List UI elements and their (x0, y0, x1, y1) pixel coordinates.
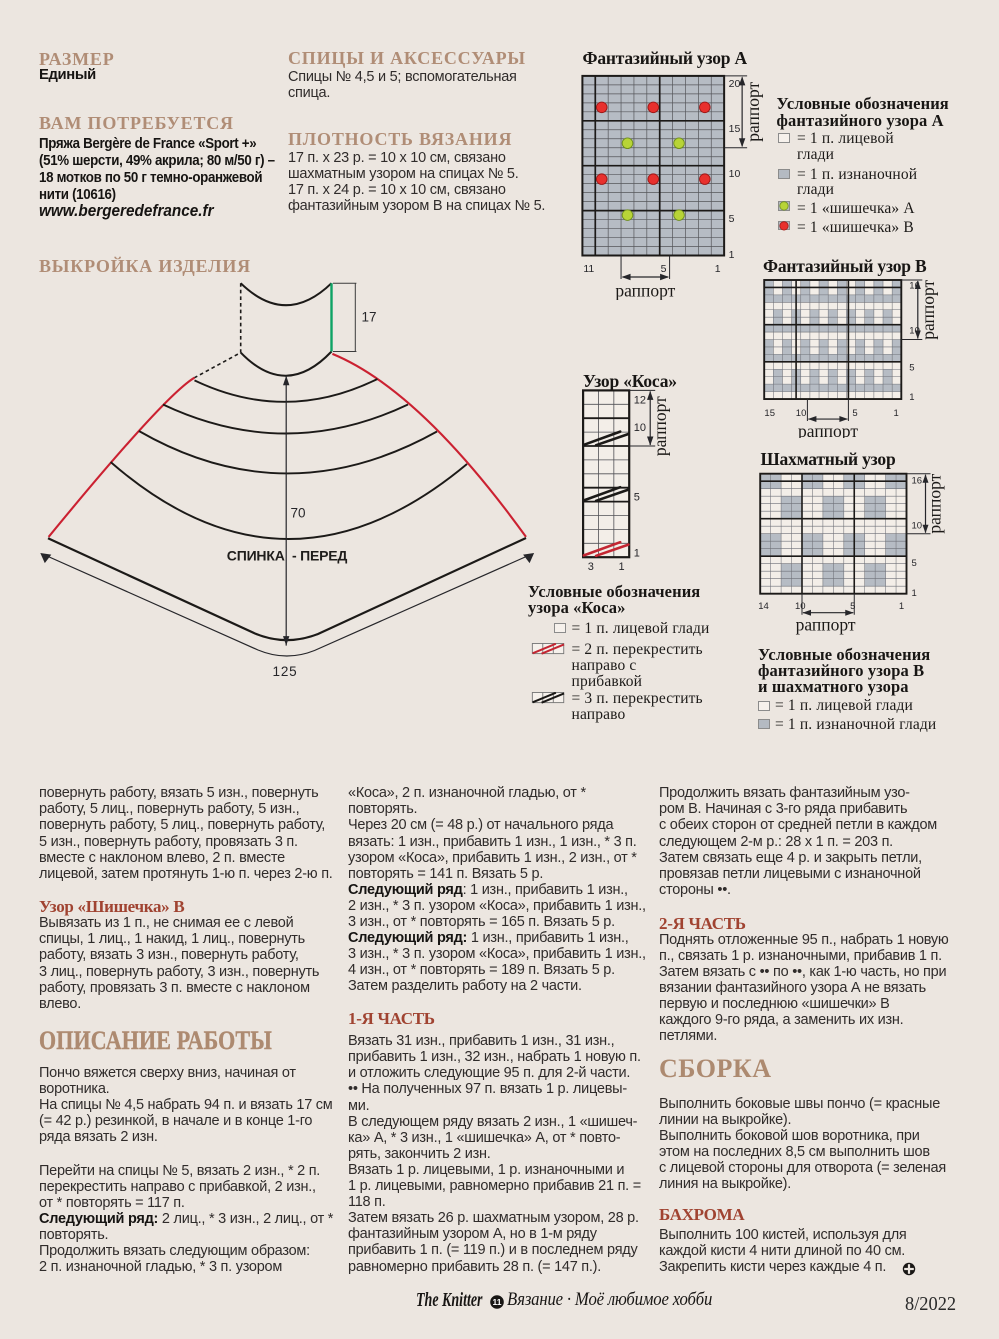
svg-text:1: 1 (893, 408, 898, 419)
svg-text:раппорт: раппорт (918, 279, 938, 339)
svg-text:125: 125 (273, 664, 298, 679)
svg-text:1: 1 (909, 392, 914, 403)
svg-text:16: 16 (912, 476, 923, 487)
svg-text:СПИНКА - ПЕРЕД: СПИНКА - ПЕРЕД (227, 548, 348, 564)
svg-text:1: 1 (912, 588, 917, 599)
svg-text:12: 12 (634, 394, 646, 406)
svg-text:5: 5 (852, 408, 857, 419)
svg-text:15: 15 (764, 408, 775, 419)
svg-text:10: 10 (795, 601, 806, 612)
svg-text:5: 5 (661, 263, 667, 275)
svg-text:70: 70 (291, 506, 306, 521)
svg-text:раппорт: раппорт (650, 396, 670, 456)
svg-text:10: 10 (634, 422, 646, 434)
svg-text:17: 17 (362, 310, 377, 325)
svg-text:20: 20 (729, 78, 741, 90)
svg-text:15: 15 (729, 123, 741, 135)
svg-text:3: 3 (588, 561, 594, 573)
svg-text:1: 1 (715, 263, 721, 275)
svg-text:5: 5 (634, 492, 640, 504)
svg-text:10: 10 (729, 168, 741, 180)
svg-text:раппорт: раппорт (796, 615, 856, 635)
svg-text:раппорт: раппорт (925, 473, 945, 533)
svg-text:1: 1 (899, 601, 904, 612)
svg-text:5: 5 (912, 558, 917, 569)
svg-text:5: 5 (729, 213, 735, 225)
svg-text:1: 1 (729, 249, 735, 261)
svg-text:1: 1 (618, 561, 624, 573)
svg-text:1: 1 (634, 547, 640, 559)
svg-text:11: 11 (583, 263, 594, 275)
svg-text:раппорт: раппорт (615, 281, 675, 301)
svg-text:10: 10 (912, 521, 923, 532)
svg-text:5: 5 (909, 363, 914, 374)
svg-text:раппорт: раппорт (743, 82, 763, 142)
svg-text:11: 11 (493, 1297, 502, 1307)
svg-text:раппорт: раппорт (798, 421, 858, 438)
svg-text:14: 14 (758, 601, 769, 612)
svg-text:10: 10 (796, 408, 807, 419)
